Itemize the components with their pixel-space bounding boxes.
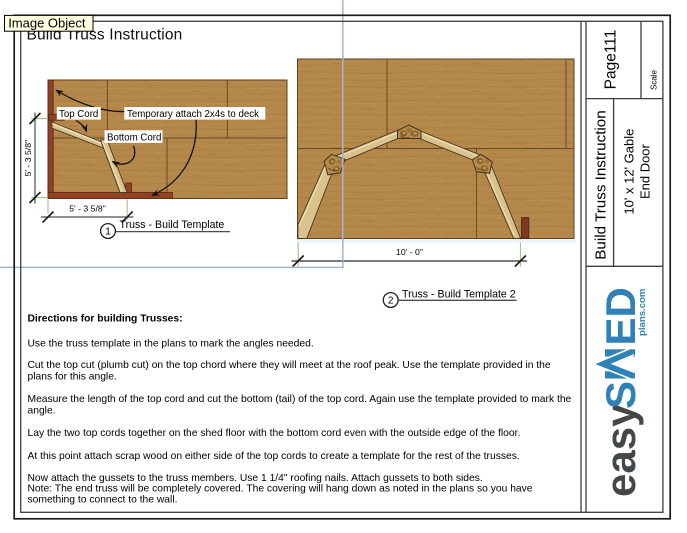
svg-text:Page111: Page111 [603,30,620,90]
svg-text:1: 1 [105,227,111,238]
svg-text:Lay the two top cords together: Lay the two top cords together on the sh… [28,428,521,439]
svg-text:End Door: End Door [638,143,653,199]
svg-text:Top Cord: Top Cord [59,109,98,120]
svg-text:Bottom Cord: Bottom Cord [107,132,161,143]
svg-text:Truss - Build Template: Truss - Build Template [120,219,225,231]
svg-text:Note: The end truss will be co: Note: The end truss will be completely c… [28,484,533,495]
svg-text:plans.com: plans.com [637,289,648,336]
svg-text:Build Truss Instruction: Build Truss Instruction [593,110,610,259]
svg-text:Now attach the gussets to the: Now attach the gussets to the truss memb… [28,473,483,484]
svg-text:Image Object: Image Object [8,16,86,31]
svg-text:Cut the top cut (plumb cut) on: Cut the top cut (plumb cut) on the top c… [28,360,551,371]
svg-text:Measure the length of the top: Measure the length of the top cord and c… [28,394,572,405]
svg-text:plans for this angle.: plans for this angle. [28,372,117,383]
svg-text:Temporary attach 2x4s to deck: Temporary attach 2x4s to deck [127,109,259,120]
svg-text:2: 2 [388,296,394,307]
svg-text:easy: easy [597,403,644,497]
svg-text:10' x 12' Gable: 10' x 12' Gable [622,129,637,215]
svg-text:5' - 3 5/8": 5' - 3 5/8" [69,204,106,214]
svg-text:At this point attach scrap woo: At this point attach scrap wood on eithe… [28,451,520,462]
svg-text:Truss - Build Template 2: Truss - Build Template 2 [402,289,516,301]
svg-text:angle.: angle. [28,406,56,417]
svg-text:something to connect to the wa: something to connect to the wall. [28,494,178,505]
svg-text:S: S [597,381,644,409]
svg-text:Use the truss template in the: Use the truss template in the plans to m… [28,338,314,349]
svg-text:10' - 0": 10' - 0" [396,247,423,257]
svg-text:5' - 3 5/8": 5' - 3 5/8" [23,140,33,177]
svg-text:Directions for building Trusse: Directions for building Trusses: [28,313,183,324]
svg-text:Scale: Scale [650,69,659,90]
